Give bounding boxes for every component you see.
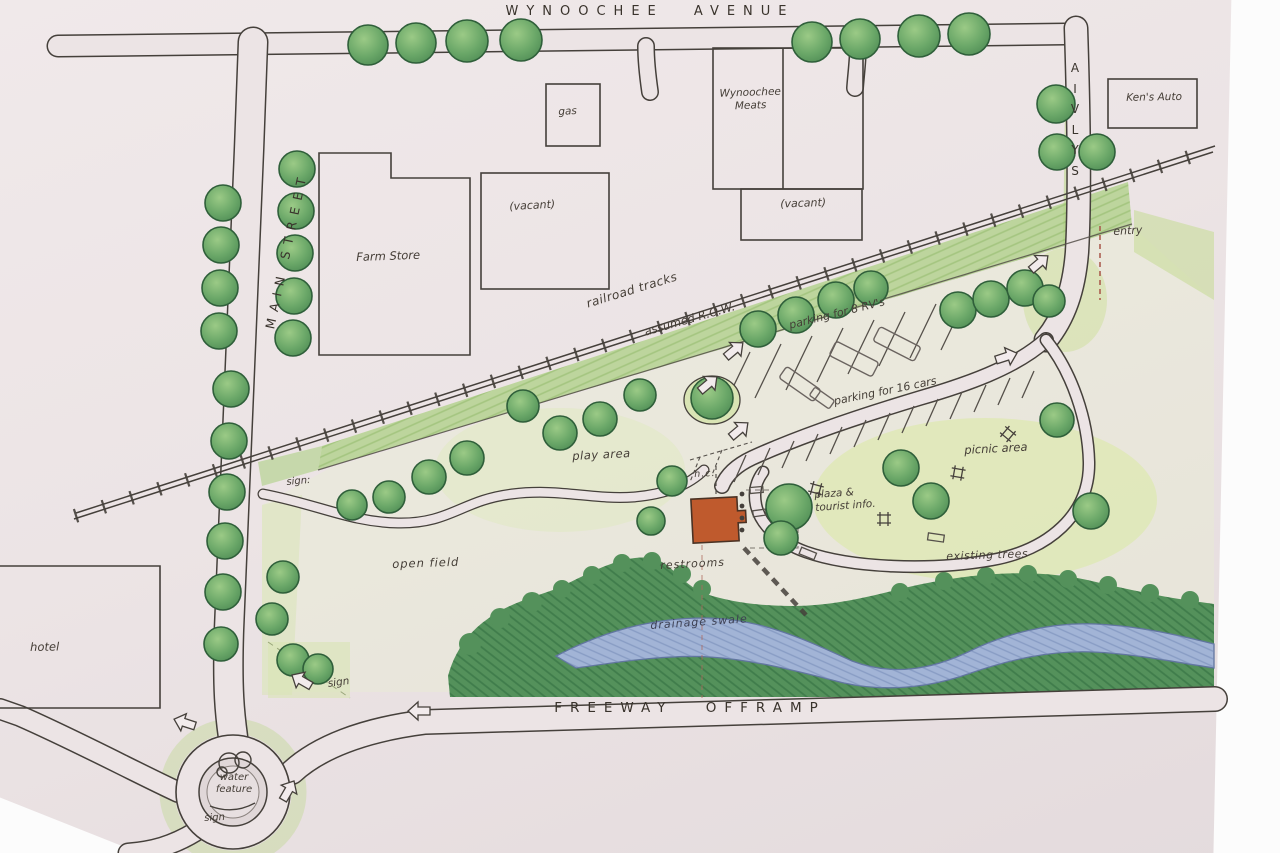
site-plan-photo: { "streets": { "wynoochee_avenue": "WYNO… <box>0 0 1280 853</box>
roundabout <box>176 735 290 849</box>
gas-building <box>546 84 600 146</box>
kens-auto-building <box>1108 79 1197 128</box>
vacant-east-building <box>741 189 862 240</box>
wynoochee-meats-building <box>713 48 863 189</box>
vacant-north-building <box>481 173 609 289</box>
site-plan-svg <box>0 0 1280 853</box>
hotel-building <box>0 566 160 708</box>
farm-store-building <box>319 153 470 355</box>
